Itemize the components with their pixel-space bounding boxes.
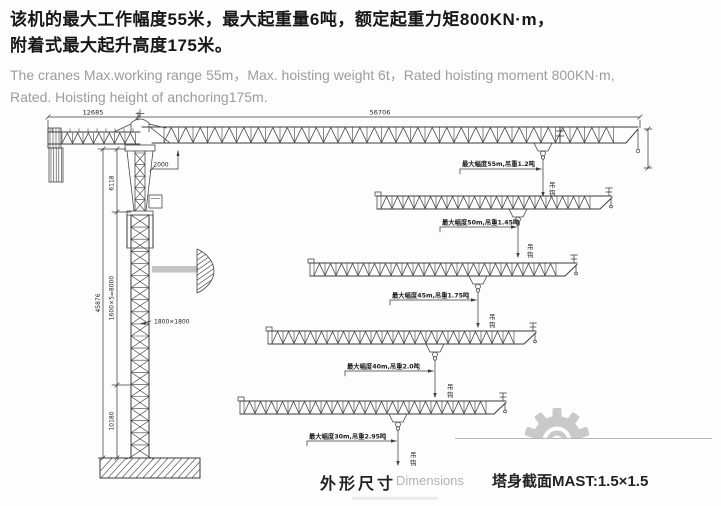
hook-marker: 吊: [527, 243, 534, 251]
config-label-40m: 最大幅度40m,吊重2.0吨: [347, 362, 421, 371]
jib-config-30m: [238, 393, 507, 466]
dim-total-height: 45876: [95, 293, 102, 312]
caption-mast-spec: 塔身截面MAST:1.5×1.5: [492, 470, 648, 491]
scan-artifact: [352, 497, 438, 500]
hook-marker: 吊: [410, 451, 417, 459]
dim-head-clearance: 2000: [153, 162, 168, 169]
dim-head-section-height: 6118: [109, 175, 116, 190]
dim-mast-sections: 1600×5=8000: [109, 276, 116, 321]
hook-marker: 钩: [489, 320, 496, 329]
hook-marker: 钩: [549, 188, 556, 197]
main-jib-55m: [142, 127, 640, 197]
gear-watermark-icon: [455, 408, 712, 474]
dim-counter-jib-length: 12685: [83, 109, 104, 117]
caption-dimensions-cn: 外形尺寸: [320, 470, 396, 494]
jib-config-40m: [266, 323, 537, 398]
dimension-lines: [46, 112, 652, 460]
config-label-30m: 最大幅度30m,吊重2.95吨: [309, 432, 387, 441]
jib-config-45m: [308, 255, 578, 328]
building-attachment: [152, 242, 216, 301]
crane-spec-sheet: 该机的最大工作幅度55米，最大起重量6吨，额定起重力矩800KN·m， 附着式最…: [0, 0, 721, 506]
config-label-50m: 最大幅度50m,吊重1.45吨: [442, 218, 520, 227]
hook-marker: 吊: [489, 313, 496, 321]
dim-mast-cross-section: 1800×1800: [154, 319, 190, 326]
hook-marker: 吊: [447, 383, 454, 391]
hook-marker: 钩: [410, 458, 417, 467]
crane-outline-drawing: 12685 56706 2000 6118 1600×5=8000 10180 …: [0, 0, 721, 506]
hook-marker: 钩: [527, 250, 534, 259]
hook-marker: 钩: [447, 390, 454, 399]
hook-marker: 吊: [549, 181, 556, 189]
counter-jib: [48, 128, 140, 182]
config-label-55m: 最大幅度55m,吊重1.2吨: [462, 159, 536, 168]
dim-jib-length: 56706: [370, 109, 391, 117]
foundation-block: [92, 456, 219, 480]
caption-dimensions-en: Dimensions: [396, 473, 464, 488]
dim-base-section-height: 10180: [109, 411, 116, 430]
config-label-45m: 最大幅度45m,吊重1.75吨: [392, 291, 470, 300]
